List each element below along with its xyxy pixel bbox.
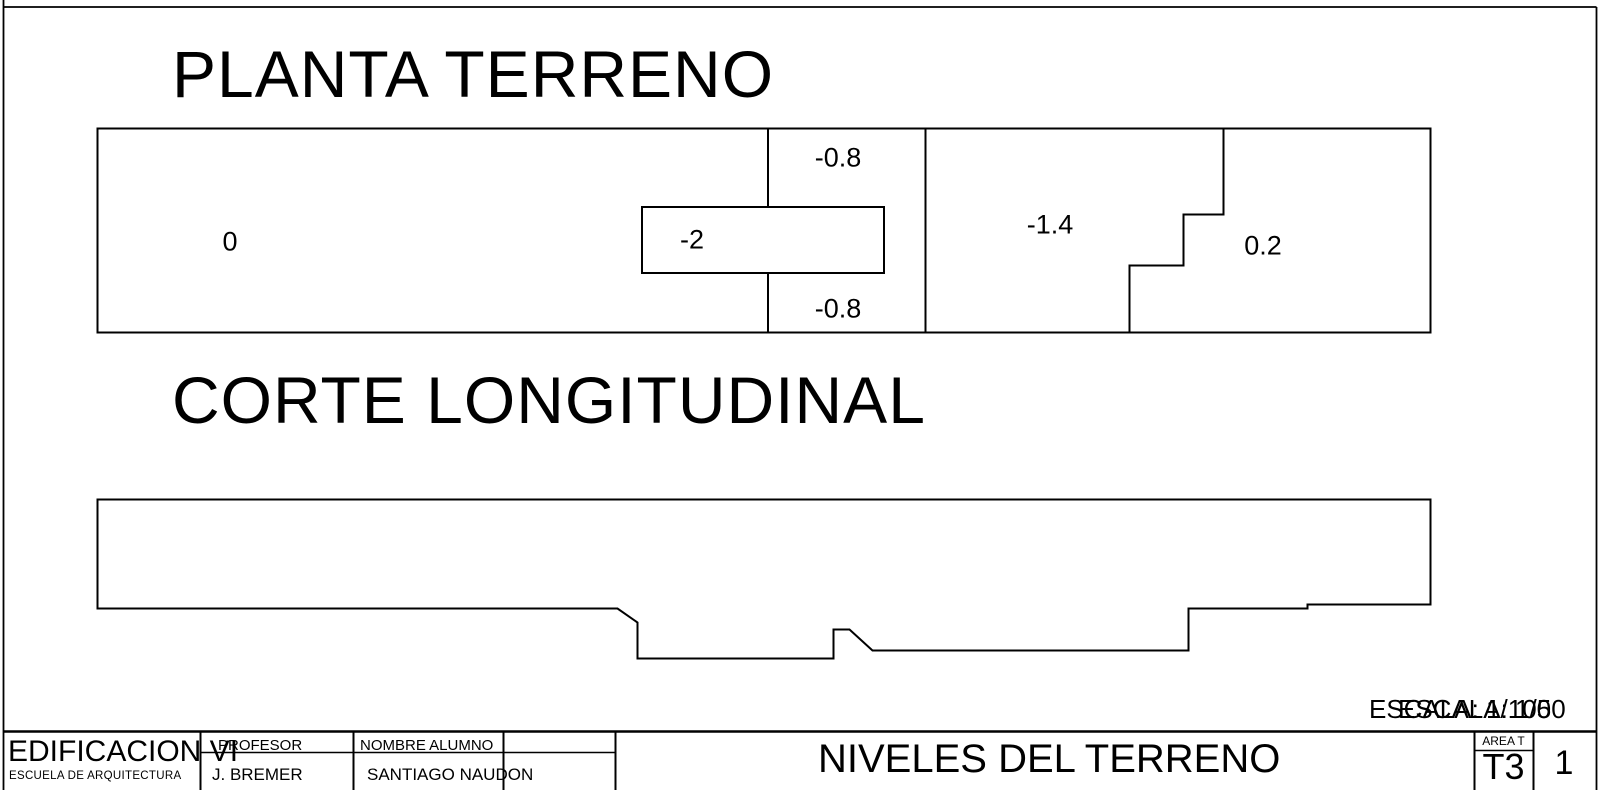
- plan-level-box-minus-2: [642, 207, 884, 273]
- professor-name: J. BREMER: [212, 765, 303, 785]
- plan-title: PLANTA TERRENO: [172, 36, 774, 112]
- school-name: ESCUELA DE ARQUITECTURA: [9, 770, 181, 782]
- project-title: EDIFICACION VI: [8, 735, 238, 769]
- level-label-minus-1-4: -1.4: [1027, 210, 1074, 241]
- sheet-code: T3: [1474, 746, 1533, 788]
- level-label-minus-0-8-bottom: -0.8: [815, 294, 862, 325]
- student-name: SANTIAGO NAUDON: [367, 765, 533, 785]
- student-label: NOMBRE ALUMNO: [360, 737, 493, 754]
- section-title: CORTE LONGITUDINAL: [172, 362, 926, 438]
- sheet-number: 1: [1533, 744, 1595, 783]
- sheet-title: NIVELES DEL TERRENO: [818, 737, 1280, 782]
- level-label-zone-0: 0: [222, 227, 237, 258]
- level-label-minus-0-8-top: -0.8: [815, 143, 862, 174]
- plan-step-boundary: [1130, 129, 1224, 333]
- drawing-sheet: PLANTA TERRENO CORTE LONGITUDINAL 0 -0.8…: [0, 0, 1600, 790]
- section-outline: [98, 500, 1431, 659]
- level-label-minus-2: -2: [680, 225, 704, 256]
- level-label-plus-0-2: 0.2: [1244, 231, 1282, 262]
- professor-label: PROFESOR: [218, 737, 302, 754]
- scale-note-section: ESCALA: 1/50: [1398, 694, 1566, 725]
